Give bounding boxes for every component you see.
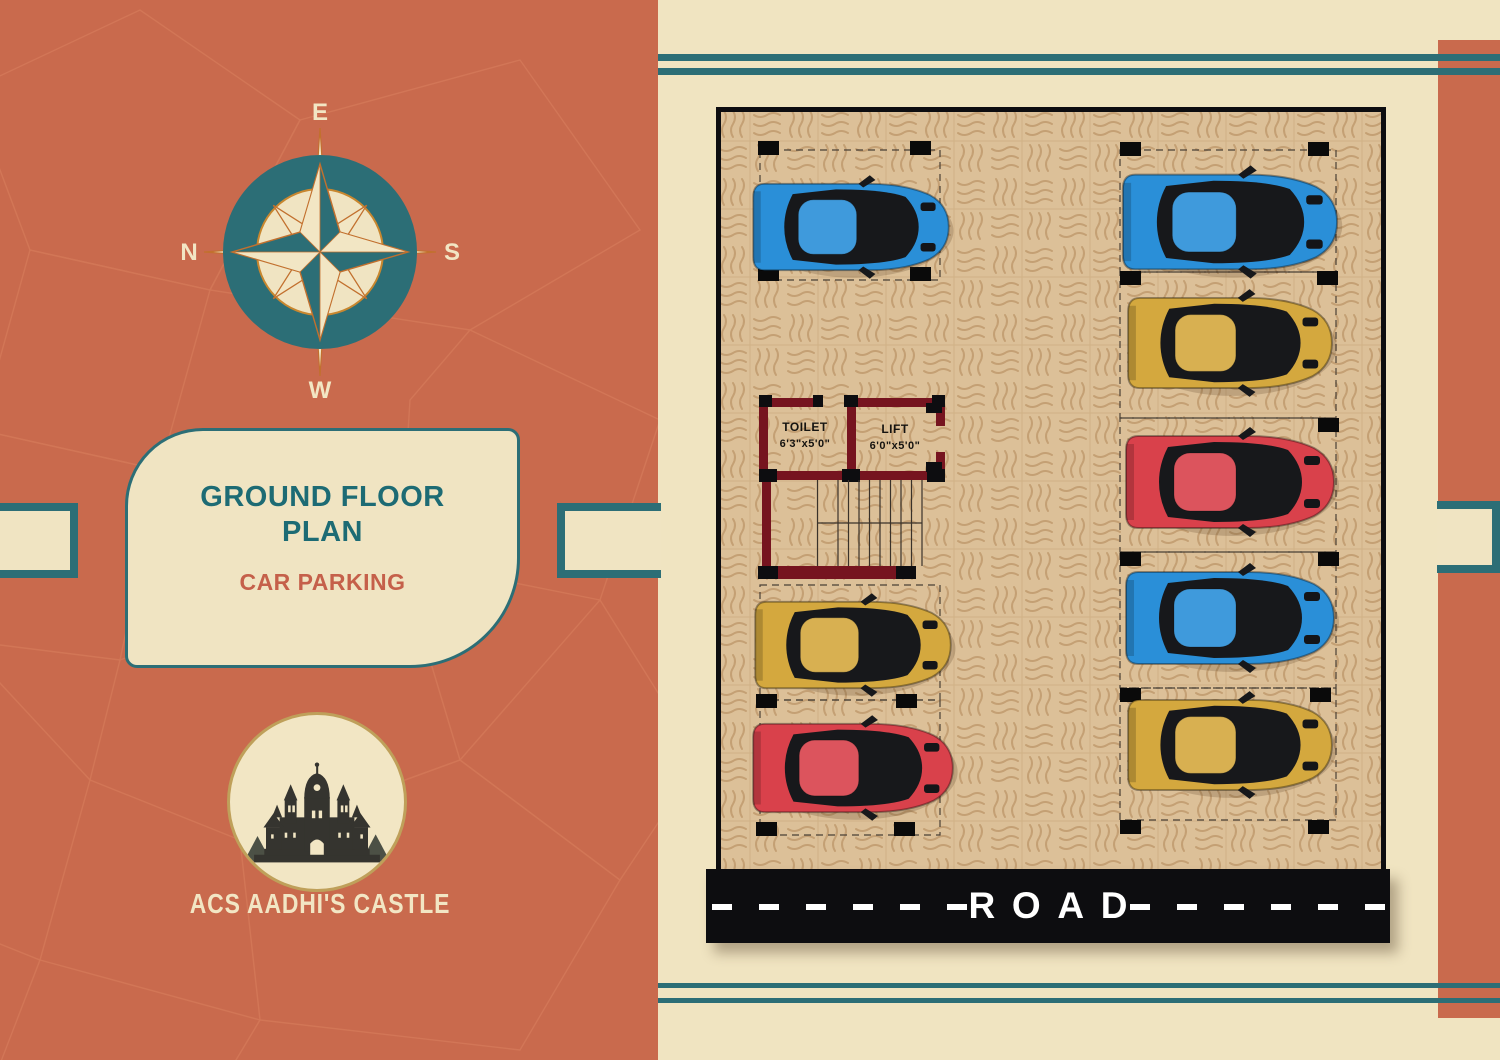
column — [1318, 418, 1339, 432]
page-title: GROUND FLOOR PLAN — [162, 480, 483, 548]
brand-logo — [227, 712, 407, 892]
right-edge-tab — [1437, 501, 1500, 573]
column — [1120, 552, 1141, 566]
column — [1308, 142, 1329, 156]
poster-canvas: E N S W GROUND FLOOR PLAN CAR PARKING — [0, 0, 1500, 1060]
floor-plan: TOILET 6'3"x5'0" LIFT 6'0"x5'0" — [716, 107, 1386, 869]
column — [758, 141, 779, 155]
brand-name: ACS AADHI'S CASTLE — [156, 888, 484, 920]
room-label-lift: LIFT — [881, 422, 908, 436]
column — [1308, 820, 1329, 834]
compass-label-north: N — [180, 239, 197, 266]
column — [1120, 271, 1141, 285]
column — [756, 694, 777, 708]
road-strip: ROAD — [706, 869, 1390, 943]
connector-tab — [557, 503, 661, 578]
column — [1317, 271, 1338, 285]
room-size-toilet: 6'3"x5'0" — [780, 438, 831, 450]
column — [910, 267, 931, 281]
room-label-toilet: TOILET — [782, 420, 828, 434]
plan-canvas: TOILET 6'3"x5'0" LIFT 6'0"x5'0" — [716, 107, 1386, 869]
column — [896, 694, 917, 708]
left-edge-tab — [0, 503, 78, 578]
bottom-stripe-1 — [658, 983, 1500, 988]
column — [894, 822, 915, 836]
room-size-lift: 6'0"x5'0" — [870, 440, 921, 452]
compass-label-west: W — [309, 377, 332, 404]
top-stripe-1 — [658, 54, 1500, 61]
page-subtitle: CAR PARKING — [239, 569, 405, 596]
column — [756, 822, 777, 836]
compass-rose: E N S W — [170, 100, 470, 404]
column — [1120, 820, 1141, 834]
bottom-stripe-2 — [658, 998, 1500, 1003]
column — [1120, 142, 1141, 156]
column — [910, 141, 931, 155]
compass-label-east: E — [312, 100, 328, 126]
compass-label-south: S — [444, 239, 460, 266]
top-stripe-2 — [658, 68, 1500, 75]
column — [1310, 688, 1331, 702]
title-card: GROUND FLOOR PLAN CAR PARKING — [125, 428, 520, 668]
column — [1318, 552, 1339, 566]
road-label: ROAD — [952, 885, 1144, 927]
